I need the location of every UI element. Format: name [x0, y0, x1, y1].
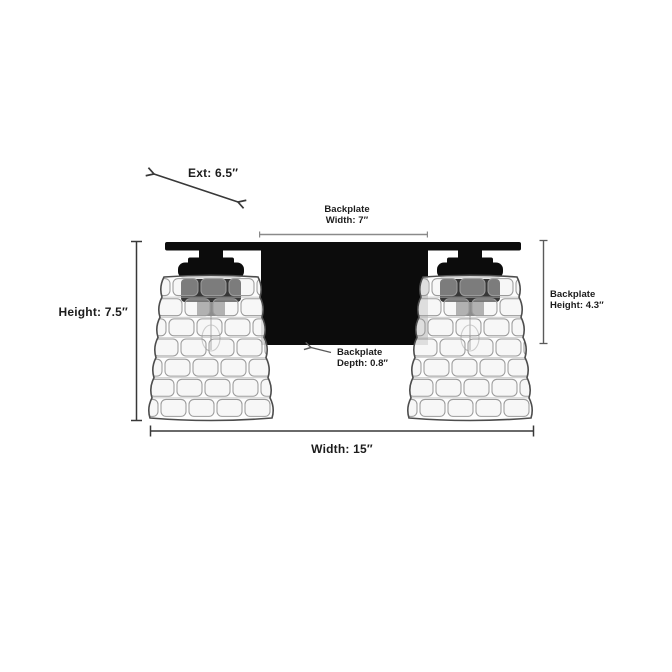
backplate-width-label: Backplate Width: 7″	[324, 205, 369, 227]
width-dimension-label: Width: 15″	[311, 442, 373, 456]
product-diagram: Ext: 6.5″ Backplate Width: 7″ Height: 7.…	[0, 0, 672, 672]
width-dimension-line	[151, 426, 534, 437]
fixture-and-dimension-art	[0, 0, 672, 672]
backplate-height-dimension-line	[540, 241, 548, 344]
backplate-depth-pointer	[311, 348, 331, 353]
backplate-height-label: Backplate Height: 4.3″	[550, 290, 604, 312]
backplate-width-dimension-line	[259, 232, 428, 238]
backplate	[261, 245, 428, 345]
label-line: Width: 7″	[324, 216, 369, 227]
height-dimension-label: Height: 7.5″	[30, 305, 128, 319]
height-dimension-line	[131, 242, 142, 421]
label-line: Height: 4.3″	[550, 301, 604, 312]
backplate-depth-label: Backplate Depth: 0.8″	[337, 348, 388, 370]
vanity-fixture-illustration	[133, 242, 557, 421]
label-line: Depth: 0.8″	[337, 359, 388, 370]
ext-dimension-label: Ext: 6.5″	[188, 166, 238, 180]
